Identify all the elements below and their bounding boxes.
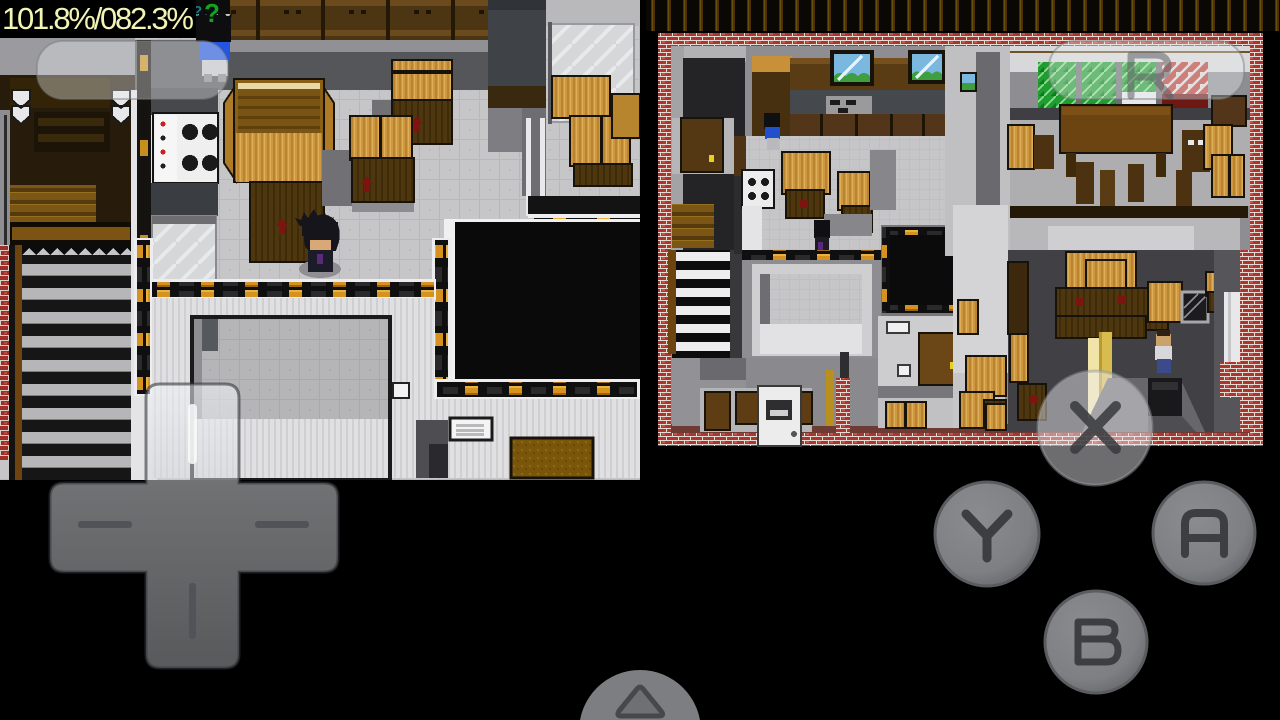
svg-text:101.8%/082.3%: 101.8%/082.3%	[2, 1, 194, 36]
svg-text:?: ?	[204, 0, 220, 28]
